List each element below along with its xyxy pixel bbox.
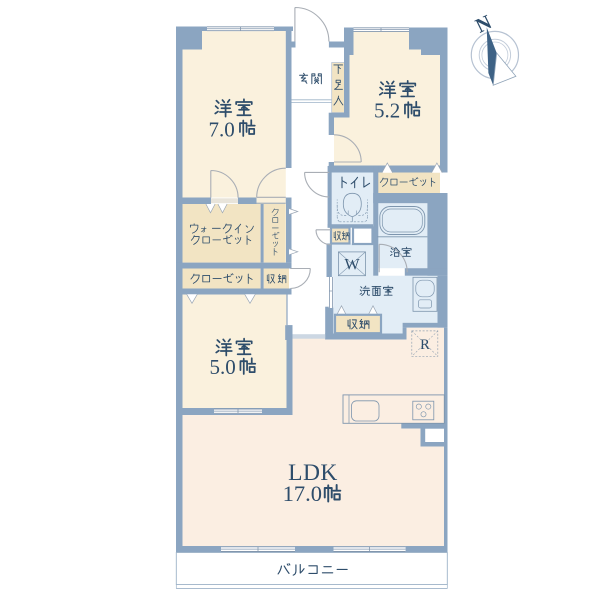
svg-text:5.2: 5.2 (374, 99, 400, 123)
svg-text:7.0: 7.0 (209, 118, 235, 142)
svg-text:W: W (344, 256, 360, 273)
svg-text:R: R (420, 337, 430, 353)
svg-text:5.0: 5.0 (210, 355, 236, 379)
svg-text:17.0: 17.0 (283, 481, 322, 506)
